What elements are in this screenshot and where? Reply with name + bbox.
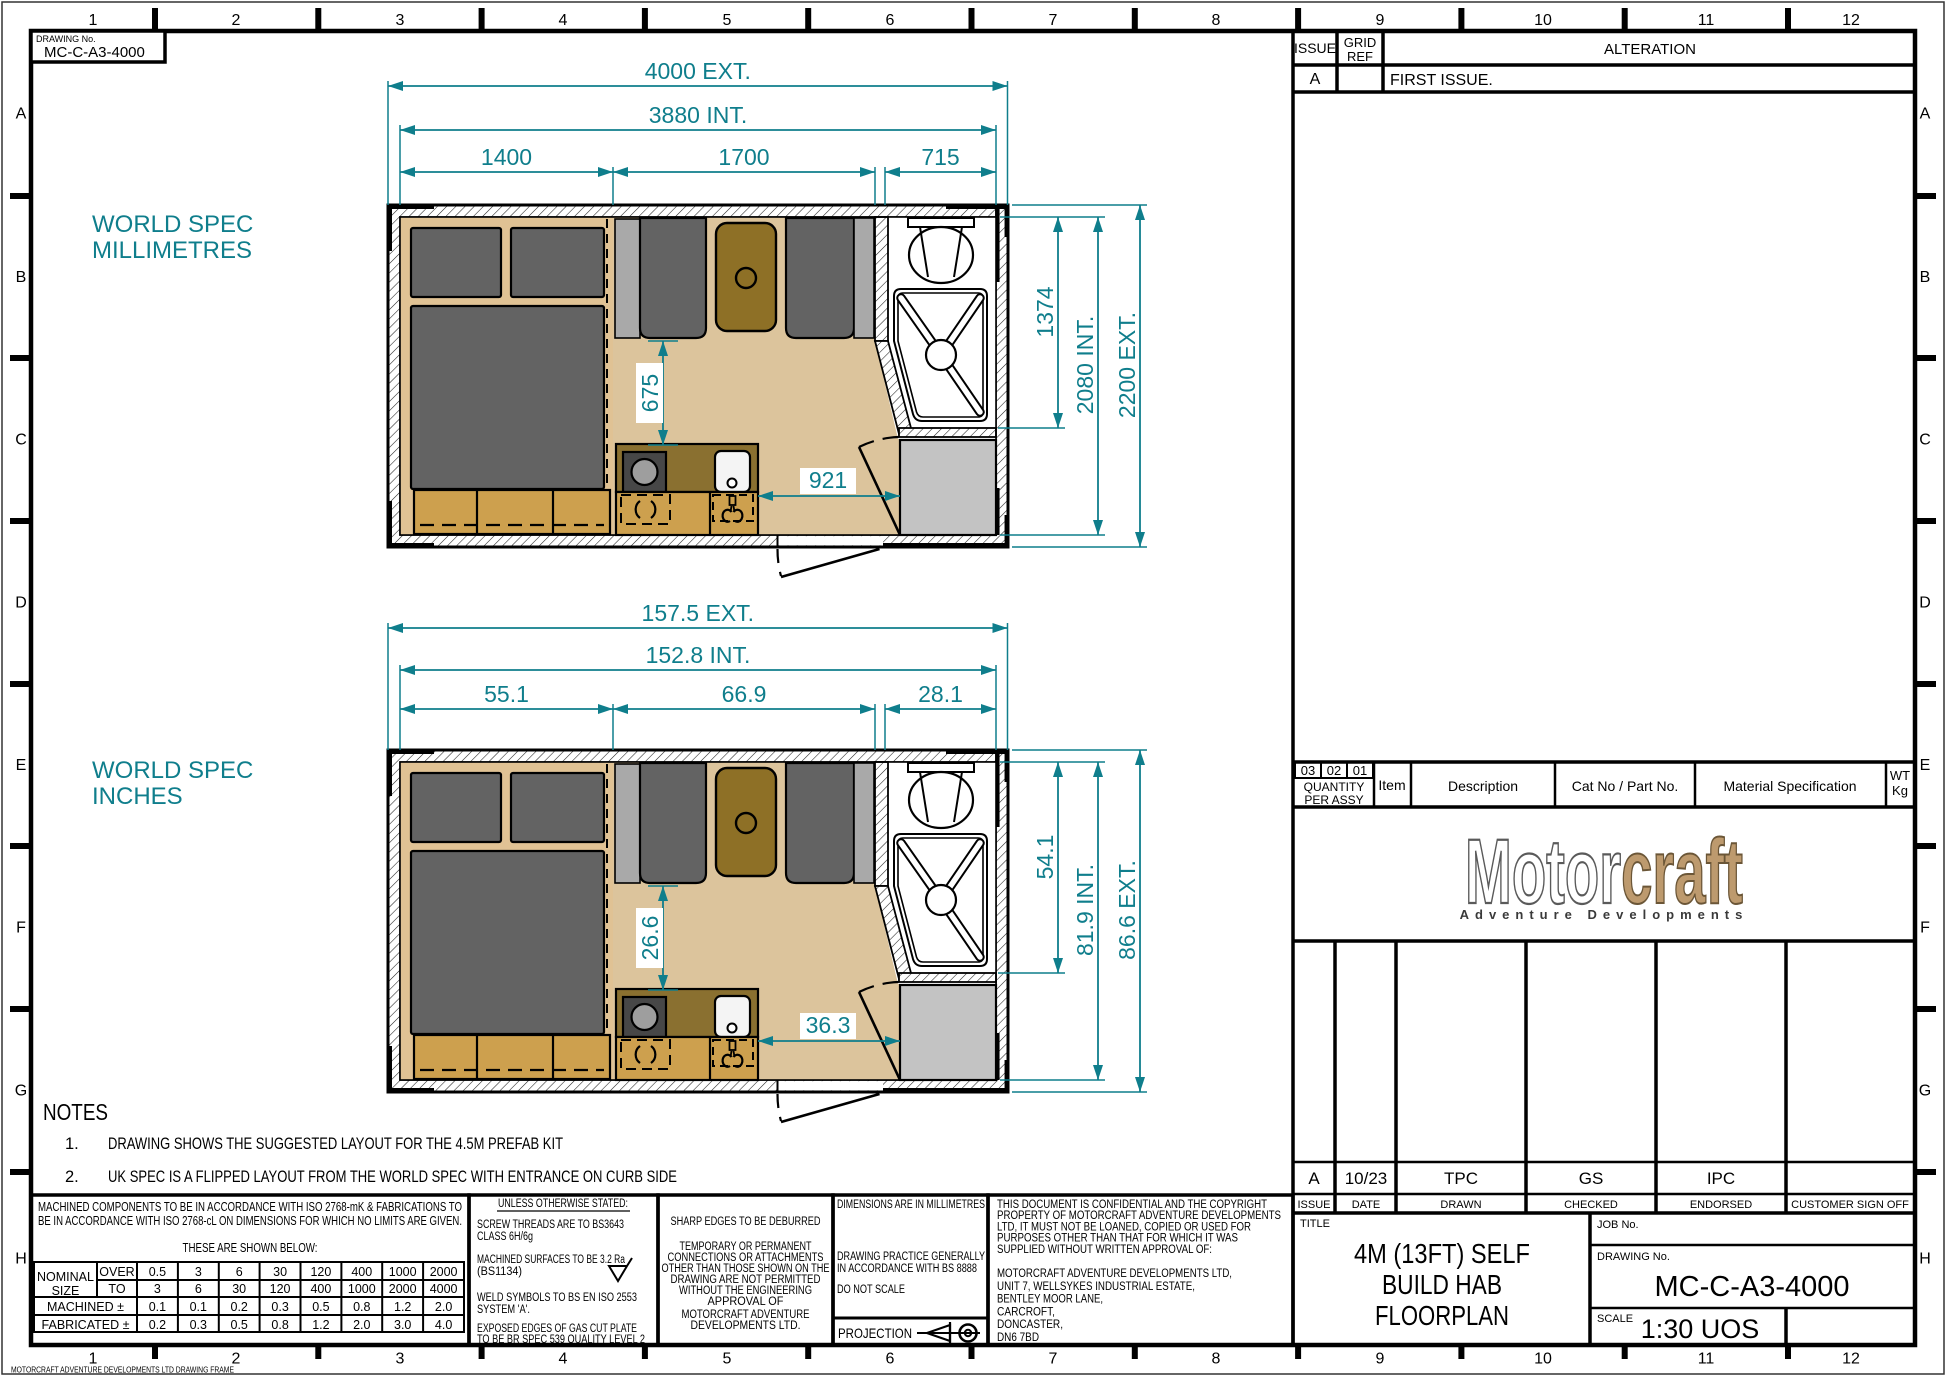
- svg-text:2200 EXT.: 2200 EXT.: [1114, 312, 1140, 418]
- svg-text:28.1: 28.1: [918, 681, 963, 707]
- svg-text:1.2: 1.2: [312, 1318, 329, 1332]
- svg-text:ISSUE: ISSUE: [1294, 40, 1336, 56]
- svg-text:ENDORSED: ENDORSED: [1690, 1199, 1752, 1211]
- svg-text:A: A: [1308, 1169, 1320, 1188]
- svg-text:1400: 1400: [481, 144, 532, 170]
- svg-text:10/23: 10/23: [1345, 1169, 1388, 1188]
- svg-text:F: F: [16, 920, 26, 937]
- svg-text:6: 6: [195, 1282, 202, 1296]
- svg-text:30: 30: [232, 1282, 246, 1296]
- svg-text:NOTES: NOTES: [43, 1099, 108, 1125]
- svg-text:SYSTEM 'A'.: SYSTEM 'A'.: [477, 1304, 530, 1316]
- svg-text:4000 EXT.: 4000 EXT.: [645, 58, 751, 84]
- svg-text:PURPOSES OTHER THAN THAT FOR W: PURPOSES OTHER THAN THAT FOR WHICH IT WA…: [997, 1233, 1238, 1245]
- svg-text:0.2: 0.2: [231, 1300, 248, 1314]
- svg-text:6: 6: [886, 12, 895, 29]
- svg-text:0.1: 0.1: [149, 1300, 166, 1314]
- svg-text:0.1: 0.1: [190, 1300, 207, 1314]
- svg-text:1000: 1000: [389, 1265, 417, 1279]
- svg-text:6: 6: [886, 1351, 895, 1368]
- svg-text:BE IN ACCORDANCE WITH ISO 2768: BE IN ACCORDANCE WITH ISO 2768-cL ON DIM…: [38, 1214, 462, 1228]
- svg-text:1:30 UOS: 1:30 UOS: [1641, 1314, 1760, 1344]
- svg-text:WELD SYMBOLS TO BS EN ISO 2553: WELD SYMBOLS TO BS EN ISO 2553: [477, 1292, 637, 1304]
- svg-text:DO NOT SCALE: DO NOT SCALE: [837, 1284, 905, 1296]
- svg-text:GRID: GRID: [1344, 35, 1377, 50]
- svg-text:2000: 2000: [430, 1265, 458, 1279]
- svg-text:2000: 2000: [389, 1282, 417, 1296]
- svg-text:6: 6: [236, 1265, 243, 1279]
- svg-text:INCHES: INCHES: [92, 783, 183, 810]
- svg-text:PROJECTION: PROJECTION: [838, 1325, 912, 1341]
- svg-text:CUSTOMER SIGN OFF: CUSTOMER SIGN OFF: [1791, 1199, 1909, 1211]
- svg-text:Kg: Kg: [1892, 783, 1908, 798]
- svg-text:157.5 EXT.: 157.5 EXT.: [642, 600, 755, 626]
- svg-text:2.0: 2.0: [353, 1318, 370, 1332]
- svg-text:G: G: [15, 1083, 27, 1100]
- svg-text:120: 120: [270, 1282, 291, 1296]
- svg-text:2.0: 2.0: [435, 1300, 452, 1314]
- svg-text:B: B: [1920, 269, 1931, 286]
- svg-text:SCREW THREADS ARE TO BS3643: SCREW THREADS ARE TO BS3643: [477, 1219, 624, 1231]
- svg-text:DN6 7BD: DN6 7BD: [997, 1332, 1039, 1344]
- svg-text:E: E: [16, 757, 27, 774]
- svg-text:IPC: IPC: [1707, 1169, 1735, 1188]
- svg-text:3: 3: [396, 1351, 405, 1368]
- svg-text:7: 7: [1049, 12, 1058, 29]
- svg-text:NOMINAL: NOMINAL: [37, 1270, 94, 1284]
- svg-text:0.8: 0.8: [353, 1300, 370, 1314]
- svg-text:FLOORPLAN: FLOORPLAN: [1375, 1300, 1509, 1331]
- svg-text:Adventure Developments: Adventure Developments: [1460, 907, 1749, 922]
- svg-text:BENTLEY MOOR LANE,: BENTLEY MOOR LANE,: [997, 1294, 1103, 1306]
- svg-text:SHARP EDGES TO BE DEBURRED: SHARP EDGES TO BE DEBURRED: [671, 1216, 821, 1228]
- svg-text:9: 9: [1376, 1351, 1385, 1368]
- svg-text:TO BE BR SPEC 539 QUALITY LEVE: TO BE BR SPEC 539 QUALITY LEVEL 2: [477, 1334, 645, 1346]
- svg-text:SIZE: SIZE: [52, 1284, 80, 1298]
- svg-text:LTD, IT MUST NOT BE LOANED, CO: LTD, IT MUST NOT BE LOANED, COPIED OR US…: [997, 1221, 1251, 1233]
- svg-text:1000: 1000: [348, 1282, 376, 1296]
- svg-text:TO: TO: [108, 1282, 125, 1296]
- svg-text:Description: Description: [1448, 778, 1518, 794]
- svg-text:E: E: [1920, 757, 1931, 774]
- svg-text:MILLIMETRES: MILLIMETRES: [92, 237, 252, 264]
- svg-text:B: B: [16, 269, 27, 286]
- svg-text:C: C: [1919, 432, 1931, 449]
- svg-text:400: 400: [351, 1265, 372, 1279]
- svg-text:F: F: [1920, 920, 1930, 937]
- svg-text:MACHINED COMPONENTS TO BE IN A: MACHINED COMPONENTS TO BE IN ACCORDANCE …: [38, 1200, 462, 1214]
- svg-text:DIMENSIONS ARE IN MILLIMETRES: DIMENSIONS ARE IN MILLIMETRES: [837, 1199, 985, 1211]
- svg-text:SUPPLIED WITHOUT WRITTEN APPRO: SUPPLIED WITHOUT WRITTEN APPROVAL OF:: [997, 1244, 1212, 1256]
- svg-text:12: 12: [1842, 12, 1860, 29]
- svg-text:66.9: 66.9: [722, 681, 767, 707]
- svg-text:TPC: TPC: [1444, 1169, 1478, 1188]
- svg-text:MOTORCRAFT ADVENTURE DEVELOPME: MOTORCRAFT ADVENTURE DEVELOPMENTS LTD DR…: [11, 1365, 234, 1375]
- svg-text:D: D: [1919, 595, 1931, 612]
- svg-text:WORLD SPEC: WORLD SPEC: [92, 211, 253, 238]
- svg-text:11: 11: [1698, 12, 1715, 29]
- svg-text:0.5: 0.5: [149, 1265, 166, 1279]
- svg-text:3: 3: [195, 1265, 202, 1279]
- svg-text:UNLESS OTHERWISE STATED:: UNLESS OTHERWISE STATED:: [498, 1196, 628, 1210]
- svg-text:120: 120: [310, 1265, 331, 1279]
- svg-text:CARCROFT,: CARCROFT,: [997, 1306, 1055, 1318]
- svg-text:81.9 INT.: 81.9 INT.: [1072, 864, 1098, 956]
- svg-text:400: 400: [310, 1282, 331, 1296]
- svg-text:0.5: 0.5: [231, 1318, 248, 1332]
- svg-text:9: 9: [1376, 12, 1385, 29]
- svg-text:2080 INT.: 2080 INT.: [1072, 316, 1098, 414]
- svg-text:ALTERATION: ALTERATION: [1604, 41, 1696, 58]
- svg-text:DRAWING No.: DRAWING No.: [1597, 1251, 1670, 1263]
- svg-text:1.2: 1.2: [394, 1300, 411, 1314]
- svg-text:C: C: [15, 432, 27, 449]
- svg-text:Cat No / Part No.: Cat No / Part No.: [1572, 778, 1679, 794]
- svg-text:DRAWING No.: DRAWING No.: [36, 34, 96, 44]
- svg-text:152.8 INT.: 152.8 INT.: [646, 642, 751, 668]
- svg-text:H: H: [1919, 1251, 1931, 1268]
- svg-text:1.: 1.: [65, 1135, 79, 1153]
- svg-text:921: 921: [809, 467, 847, 493]
- svg-text:H: H: [15, 1251, 27, 1268]
- svg-text:DEVELOPMENTS LTD.: DEVELOPMENTS LTD.: [691, 1320, 801, 1332]
- svg-text:12: 12: [1842, 1351, 1860, 1368]
- svg-text:SCALE: SCALE: [1597, 1313, 1633, 1325]
- svg-text:MC-C-A3-4000: MC-C-A3-4000: [1655, 1271, 1850, 1303]
- svg-text:PER ASSY: PER ASSY: [1304, 793, 1363, 807]
- svg-text:03: 03: [1301, 763, 1315, 778]
- svg-text:MC-C-A3-4000: MC-C-A3-4000: [44, 44, 145, 61]
- svg-text:THESE ARE SHOWN BELOW:: THESE ARE SHOWN BELOW:: [183, 1241, 318, 1255]
- svg-text:MACHINED SURFACES TO BE 3.2 R: MACHINED SURFACES TO BE 3.2 Ra: [477, 1254, 625, 1266]
- svg-text:MOTORCRAFT ADVENTURE DEVELOPME: MOTORCRAFT ADVENTURE DEVELOPMENTS LTD,: [997, 1268, 1232, 1280]
- svg-text:OVER: OVER: [99, 1265, 134, 1279]
- svg-text:1700: 1700: [718, 144, 769, 170]
- svg-text:2.: 2.: [65, 1168, 79, 1186]
- svg-text:WT: WT: [1890, 768, 1910, 783]
- svg-text:THIS DOCUMENT IS CONFIDENTIAL: THIS DOCUMENT IS CONFIDENTIAL AND THE CO…: [997, 1199, 1267, 1211]
- svg-text:DATE: DATE: [1352, 1199, 1381, 1211]
- svg-text:A: A: [1920, 106, 1931, 123]
- svg-text:0.8: 0.8: [271, 1318, 288, 1332]
- svg-text:Item: Item: [1378, 777, 1405, 793]
- svg-text:01: 01: [1353, 763, 1367, 778]
- svg-text:4: 4: [559, 1351, 568, 1368]
- svg-text:10: 10: [1534, 12, 1552, 29]
- svg-text:675: 675: [637, 374, 663, 412]
- svg-text:TITLE: TITLE: [1300, 1218, 1330, 1230]
- svg-text:3.0: 3.0: [394, 1318, 411, 1332]
- svg-text:0.2: 0.2: [149, 1318, 166, 1332]
- svg-text:JOB No.: JOB No.: [1597, 1219, 1639, 1231]
- svg-text:REF: REF: [1347, 49, 1373, 64]
- svg-text:8: 8: [1212, 1351, 1221, 1368]
- svg-text:0.3: 0.3: [271, 1300, 288, 1314]
- svg-text:IN ACCORDANCE WITH BS 8888: IN ACCORDANCE WITH BS 8888: [837, 1263, 977, 1275]
- svg-text:DONCASTER,: DONCASTER,: [997, 1319, 1063, 1331]
- svg-text:86.6 EXT.: 86.6 EXT.: [1114, 860, 1140, 960]
- svg-text:CHECKED: CHECKED: [1564, 1199, 1618, 1211]
- svg-text:G: G: [1919, 1083, 1931, 1100]
- svg-text:GS: GS: [1579, 1169, 1604, 1188]
- svg-text:0.3: 0.3: [190, 1318, 207, 1332]
- svg-text:Material Specification: Material Specification: [1723, 778, 1856, 794]
- svg-text:A: A: [16, 106, 27, 123]
- svg-text:5: 5: [723, 12, 732, 29]
- svg-text:FIRST ISSUE.: FIRST ISSUE.: [1390, 72, 1493, 89]
- svg-text:1: 1: [89, 12, 98, 29]
- svg-text:10: 10: [1534, 1351, 1552, 1368]
- svg-text:DRAWN: DRAWN: [1440, 1199, 1481, 1211]
- svg-text:DRAWING PRACTICE GENERALLY: DRAWING PRACTICE GENERALLY: [837, 1251, 985, 1263]
- svg-text:WORLD SPEC: WORLD SPEC: [92, 757, 253, 784]
- svg-text:A: A: [1310, 71, 1321, 88]
- svg-text:CLASS 6H/6g: CLASS 6H/6g: [477, 1231, 533, 1243]
- svg-text:4M (13FT) SELF: 4M (13FT) SELF: [1354, 1238, 1530, 1269]
- svg-text:7: 7: [1049, 1351, 1058, 1368]
- svg-text:36.3: 36.3: [806, 1012, 851, 1038]
- svg-text:3880 INT.: 3880 INT.: [649, 102, 747, 128]
- svg-text:DRAWING SHOWS THE SUGGESTED LA: DRAWING SHOWS THE SUGGESTED LAYOUT FOR T…: [108, 1135, 563, 1153]
- svg-text:0.5: 0.5: [312, 1300, 329, 1314]
- svg-text:11: 11: [1698, 1351, 1715, 1368]
- svg-text:UNIT 7, WELLSYKES INDUSTRIAL E: UNIT 7, WELLSYKES INDUSTRIAL ESTATE,: [997, 1281, 1195, 1293]
- svg-text:1374: 1374: [1032, 286, 1058, 337]
- svg-text:BUILD HAB: BUILD HAB: [1382, 1269, 1502, 1300]
- svg-text:FABRICATED ±: FABRICATED ±: [42, 1318, 130, 1332]
- svg-text:55.1: 55.1: [484, 681, 529, 707]
- svg-text:ISSUE: ISSUE: [1297, 1199, 1330, 1211]
- svg-text:3: 3: [154, 1282, 161, 1296]
- svg-text:5: 5: [723, 1351, 732, 1368]
- svg-text:3: 3: [396, 12, 405, 29]
- svg-text:30: 30: [273, 1265, 287, 1279]
- svg-text:2: 2: [232, 12, 241, 29]
- svg-text:PROPERTY OF MOTORCRAFT ADVENTU: PROPERTY OF MOTORCRAFT ADVENTURE DEVELOP…: [997, 1210, 1281, 1222]
- svg-text:4: 4: [559, 12, 568, 29]
- svg-text:D: D: [15, 595, 27, 612]
- svg-text:(BS1134): (BS1134): [477, 1266, 522, 1278]
- svg-text:APPROVAL OF: APPROVAL OF: [708, 1296, 784, 1308]
- svg-text:26.6: 26.6: [637, 916, 663, 961]
- svg-text:4.0: 4.0: [435, 1318, 452, 1332]
- svg-text:QUANTITY: QUANTITY: [1304, 780, 1365, 794]
- svg-text:715: 715: [921, 144, 959, 170]
- svg-text:UK SPEC IS A FLIPPED LAYOUT FR: UK SPEC IS A FLIPPED LAYOUT FROM THE WOR…: [108, 1168, 677, 1186]
- svg-text:MACHINED ±: MACHINED ±: [47, 1300, 124, 1314]
- svg-text:4000: 4000: [430, 1282, 458, 1296]
- svg-text:8: 8: [1212, 12, 1221, 29]
- svg-text:02: 02: [1327, 763, 1341, 778]
- svg-text:54.1: 54.1: [1032, 835, 1058, 880]
